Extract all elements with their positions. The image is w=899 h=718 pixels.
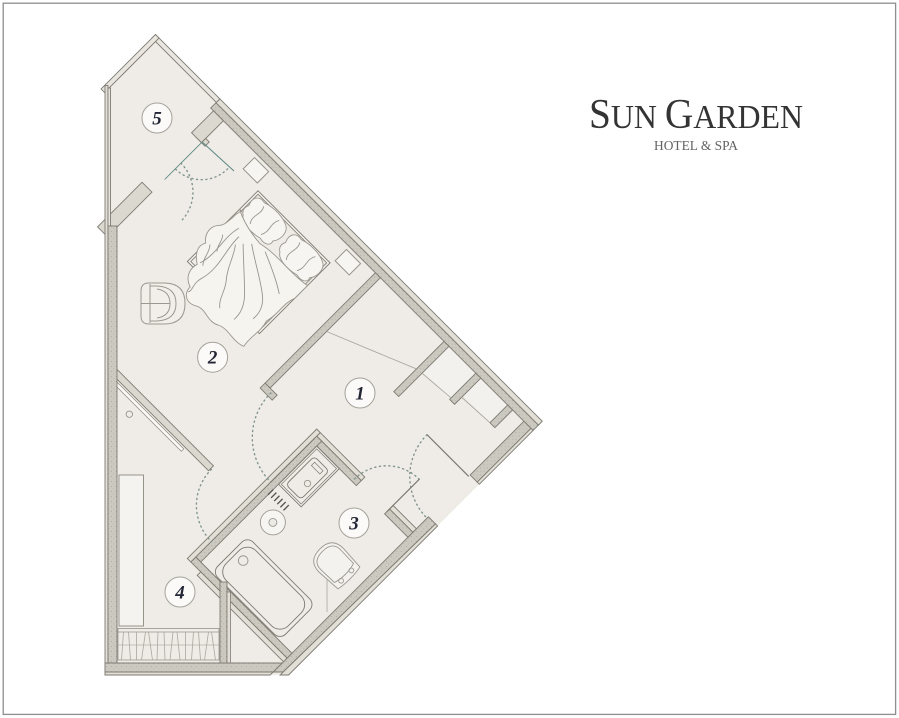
svg-text:3: 3 — [348, 514, 359, 535]
svg-text:SUN GARDEN: SUN GARDEN — [589, 92, 803, 138]
svg-text:HOTEL & SPA: HOTEL & SPA — [654, 139, 739, 154]
svg-text:2: 2 — [207, 348, 218, 369]
svg-text:1: 1 — [355, 384, 365, 405]
svg-text:5: 5 — [152, 109, 162, 130]
svg-text:4: 4 — [174, 583, 185, 604]
